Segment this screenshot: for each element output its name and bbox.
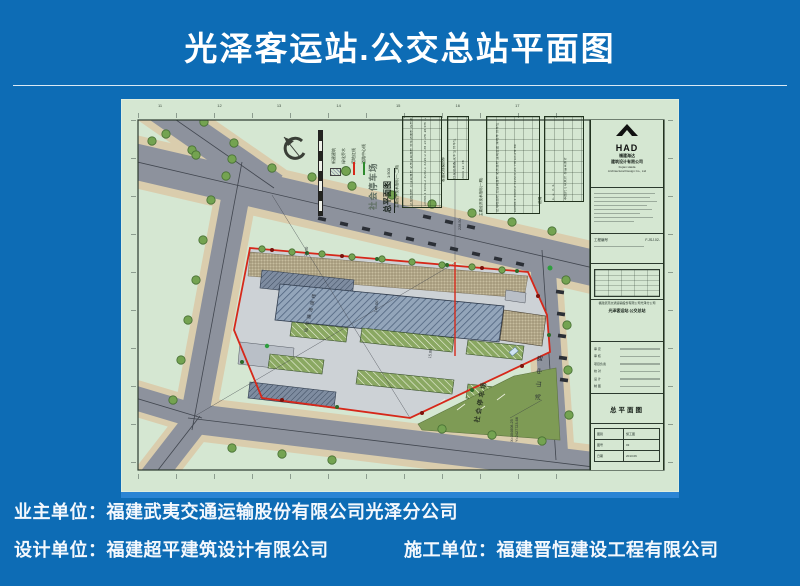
indicator-table-1-title: 主要经济技术指标(一-二期) [396,165,400,208]
scale-bar [318,130,323,216]
legend-item-label: 道路中心线 [362,144,366,164]
north-arrow-icon [280,131,310,169]
title-block: HAD 福建海达 建筑设计有限公司 Fujian Haida Architect… [590,120,664,470]
sig-label: 校 对 [594,369,620,373]
poster-title: 光泽客运站.公交总站平面图 [0,22,800,70]
coordinate-y: Y=2427723.68 [515,417,520,442]
project-number-section: 工程编号 F.JSJ.02- [591,234,663,264]
legend-greenline-icon [363,162,365,175]
legend-tree-icon [341,166,351,176]
sheet-info-value: 施工图 [624,432,659,436]
project-number-value: F.JSJ.02- [645,238,660,243]
notes-table-items: 1. 2. 3. 4. [552,118,556,200]
revision-grid-section [591,264,663,300]
sheet-info-label: 日期 [595,451,624,461]
legend-building-swatch [330,168,341,176]
sig-label: 项目负责 [594,362,620,366]
signature-section: 审 定 审 核 项目负责 校 对 设 计 制 图 [591,342,663,394]
sig-label: 制 图 [594,384,620,388]
coordinate-label: X=304608.25 Y=2427723.68 [510,417,519,442]
notes-table-values: 本图尺寸以米计 标高以米计 [564,118,568,200]
indicator-table-2-title: 客运站规模指标 [442,157,446,182]
owner-name: 福建武夷交通运输股份有限公司光泽分公司 [594,302,660,306]
had-logo-icon [614,122,640,138]
title-divider [13,85,787,86]
sheet-info-value: 03 [624,443,659,447]
owner-unit-line: 业主单位：福建武夷交通运输股份有限公司光泽分公司 [14,498,458,524]
drawing-sheet: 11 12 13 14 15 16 17 [121,99,679,492]
sheet-info-section: 图别施工图 图号03 日期2013.06 [591,424,663,470]
sig-label: 审 核 [594,354,620,358]
project-number-label: 工程编号 [594,238,608,243]
legend-parking-label: 社会停车场 [369,162,378,210]
signal-dot [548,266,553,271]
view-title-scale: 1:500 [386,168,391,178]
logo-text: HAD [594,143,660,153]
sig-label: 审 定 [594,347,620,351]
sheet-info-label: 图号 [595,440,624,450]
certificate-section [591,188,663,234]
notes-table-title: 说明 [539,197,543,204]
project-section: 福建武夷交通运输股份有限公司光泽分公司 光泽客运站.公交总站 [591,300,663,342]
indicator-table-3-items: 总用地面积 总建筑面积 站房面积 建筑密度 绿地率 停车位 [496,118,500,212]
indicator-table-3-values: 10968.4 4455.2 3250.4 25.7% 15.2% 86 [514,118,518,212]
legend-item-label: 新建建筑 [332,148,336,164]
project-name: 光泽客运站.公交总站 [594,308,660,314]
coordinate-x: X=304608.25 [510,417,515,442]
indicator-table-1-items: 总用地面积 总建筑面积 站房建筑面积 停车场面积 容积率 建筑密度 绿地率 停车… [410,118,414,206]
indicator-table-2-items: 日发送旅客 发车位 停车位 [453,119,457,179]
indicator-table-2 [447,116,469,180]
dim-label: 228.50 [458,218,462,230]
indicator-table-3 [486,116,540,214]
legend-item-label: 绿化乔木 [342,148,346,164]
view-title: 总平面图1:500 [384,168,395,213]
sheet-info-label: 图别 [595,429,624,439]
sig-label: 设 计 [594,377,620,381]
construction-unit-line: 施工单位：福建晋恒建设工程有限公司 [404,536,719,562]
drawing-name-section: 总平面图 [591,394,663,424]
indicator-table-2-values: 3000 12 56 [462,119,466,179]
legend-redline-icon [353,162,355,175]
design-unit-line: 设计单位：福建超平建筑设计有限公司 [14,536,329,562]
company-name-en2: Architectural Design Co., Ltd [594,169,660,173]
drawing-name: 总平面图 [594,404,660,414]
view-title-name: 总平面图 [383,181,392,213]
indicator-table-3-title: 主要经济技术指标(一期) [480,178,484,216]
signal-dot-2 [265,344,269,348]
indicator-table-1 [402,116,442,208]
titleblock-logo-section: HAD 福建海达 建筑设计有限公司 Fujian Haida Architect… [591,120,663,188]
poster-root: 光泽客运站.公交总站平面图 11 12 13 14 15 16 17 [0,0,800,586]
revision-grid [594,269,660,297]
indicator-table-1-values: 15968.4 6051.2 4050.1 3216.0 0.38 25.4% … [424,118,428,206]
sheet-info-value: 2013.06 [624,454,659,458]
